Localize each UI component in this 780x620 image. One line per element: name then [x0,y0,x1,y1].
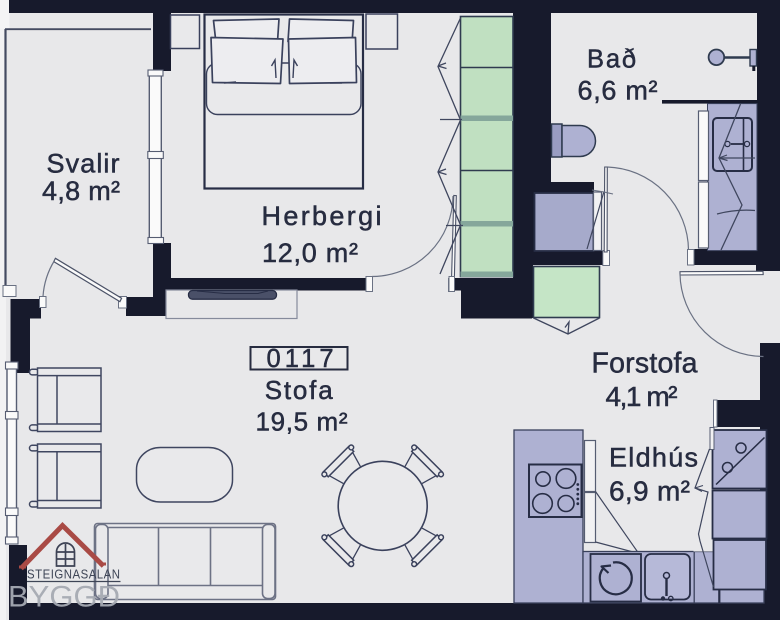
svg-text:Eldhús: Eldhús [609,443,698,473]
svg-text:Stofa: Stofa [265,375,334,405]
svg-text:Forstofa: Forstofa [592,347,698,379]
svg-text:STEIGNASALAN: STEIGNASALAN [27,568,121,582]
svg-text:4,1 m²: 4,1 m² [606,381,678,412]
svg-text:12,0 m²: 12,0 m² [262,238,358,268]
svg-text:6,9 m²: 6,9 m² [609,475,690,506]
svg-text:Bað: Bað [587,46,636,74]
svg-text:6,6 m²: 6,6 m² [578,75,658,105]
svg-text:Herbergi: Herbergi [262,201,382,231]
svg-text:BYGGÐ: BYGGÐ [8,581,120,614]
svg-text:Svalir: Svalir [47,148,120,178]
svg-text:19,5 m²: 19,5 m² [256,406,348,436]
svg-text:4,8 m²: 4,8 m² [42,176,120,206]
